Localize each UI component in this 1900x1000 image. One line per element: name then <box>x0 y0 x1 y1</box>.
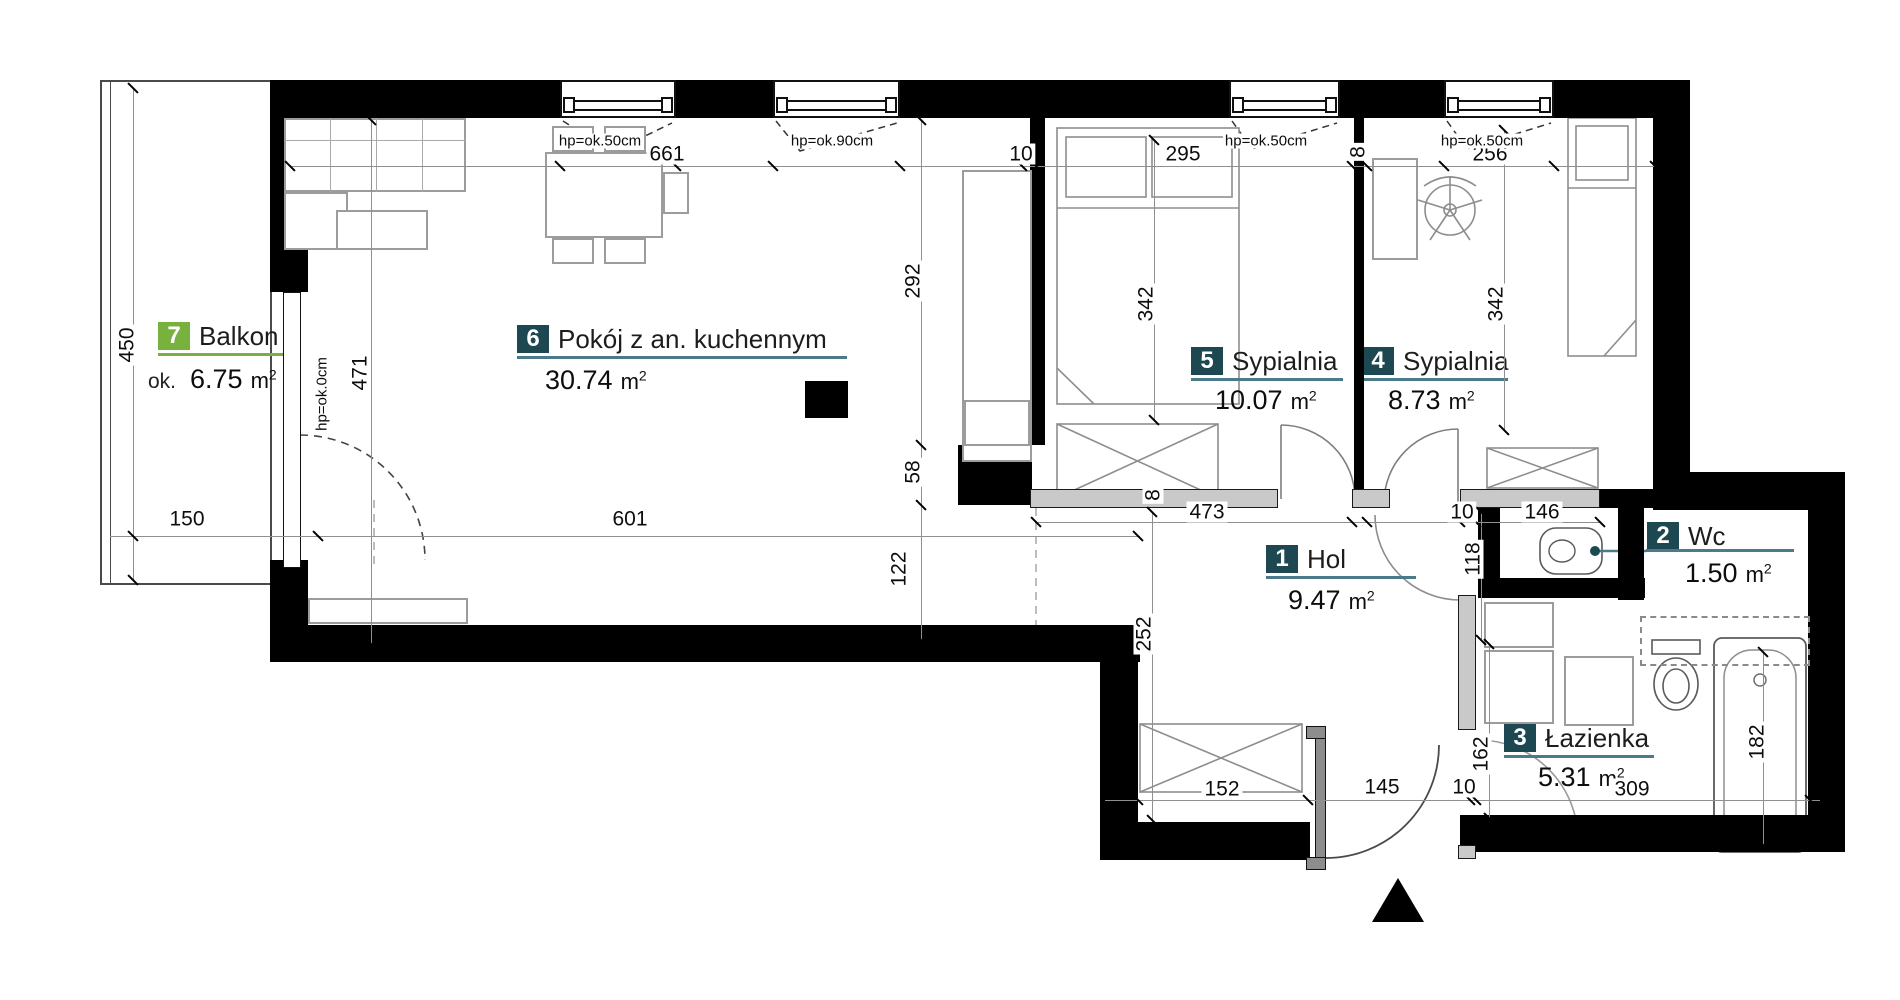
washing-machine <box>1564 656 1634 726</box>
label-underline <box>158 353 296 356</box>
window-4 <box>1444 80 1554 118</box>
window-height-label-w1: hp=ok.50cm <box>557 134 643 149</box>
chair <box>604 238 646 264</box>
dimension-d118: 118 <box>1463 539 1484 578</box>
dimension-line <box>290 166 1655 167</box>
room-area: ok.6.75m2 <box>148 364 277 395</box>
window-hinge <box>1232 97 1244 113</box>
wall <box>1600 489 1655 508</box>
dimension-d150: 150 <box>166 509 207 530</box>
wall <box>1354 118 1364 500</box>
label-underline <box>1266 576 1416 579</box>
dimension-d252: 252 <box>1134 613 1155 654</box>
dimension-line <box>1504 130 1505 430</box>
window-glazing <box>1449 100 1549 111</box>
room-label-lazienka: 3 Łazienka 5.31m2 <box>1504 724 1649 752</box>
room-area: 10.07m2 <box>1215 385 1317 416</box>
window-height-label-w3: hp=ok.50cm <box>1223 134 1309 149</box>
sideboard <box>308 598 468 624</box>
entry-door-leaf <box>1315 738 1326 858</box>
window-glazing <box>778 100 895 111</box>
label-underline <box>1191 378 1343 381</box>
room-name: Hol <box>1307 545 1346 573</box>
dimension-d162: 162 <box>1471 733 1492 774</box>
window-height-label-w4: hp=ok.50cm <box>1439 134 1525 149</box>
wall <box>900 80 1229 118</box>
wall <box>805 381 848 418</box>
bedroom4-door-arc <box>1384 429 1458 503</box>
wall <box>1100 822 1310 860</box>
window-hinge <box>1539 97 1551 113</box>
window-hinge <box>563 97 575 113</box>
room-number-badge: 1 <box>1266 545 1298 573</box>
window-hinge <box>661 97 673 113</box>
window-glazing <box>565 100 671 111</box>
dimension-d8b: 8 <box>1143 486 1164 504</box>
ceiling-soffit-dashed <box>1640 616 1810 666</box>
partition-wall <box>1458 595 1476 730</box>
label-underline <box>517 356 847 359</box>
wall <box>1653 80 1690 510</box>
window-hinge <box>776 97 788 113</box>
room-name: Łazienka <box>1545 724 1649 752</box>
dimension-d601: 601 <box>609 509 650 530</box>
label-underline <box>1362 378 1508 381</box>
dimension-d471: 471 <box>350 352 371 393</box>
room-name: Pokój z an. kuchennym <box>558 325 827 353</box>
room-name: Balkon <box>199 322 279 350</box>
label-underline <box>1646 549 1794 552</box>
balcony-sliding-door <box>283 292 301 568</box>
sofa-divider <box>376 118 377 192</box>
room-name: Sypialnia <box>1232 347 1338 375</box>
dimension-d10a: 10 <box>1006 144 1035 165</box>
room-number-badge: 5 <box>1191 347 1223 375</box>
room-area: 30.74m2 <box>545 365 647 396</box>
window-height-label-w2: hp=ok.90cm <box>789 134 875 149</box>
window-3 <box>1229 80 1340 118</box>
room-number-badge: 7 <box>158 322 190 350</box>
dimension-d146: 146 <box>1521 502 1562 523</box>
sofa <box>284 118 466 192</box>
room-area: 8.73m2 <box>1388 385 1475 416</box>
room-area: 9.47m2 <box>1288 585 1375 616</box>
wall <box>1340 80 1444 118</box>
sofa-divider <box>422 118 423 192</box>
wall <box>270 625 1140 662</box>
room-label-balkon: 7 Balkon ok.6.75m2 <box>158 322 279 350</box>
dimension-d342a: 342 <box>1136 283 1157 324</box>
room-label-sypialnia5: 5 Sypialnia 10.07m2 <box>1191 347 1338 375</box>
chair <box>663 172 689 214</box>
north-arrow <box>1372 878 1424 922</box>
dimension-d309: 309 <box>1611 779 1652 800</box>
bed-bedroom4 <box>1568 118 1636 356</box>
room-number-badge: 2 <box>1647 522 1679 550</box>
hol-door-arc <box>1375 515 1460 600</box>
dimension-d152: 152 <box>1201 779 1242 800</box>
floor-plan: 7 Balkon ok.6.75m2 6 Pokój z an. kuchenn… <box>0 0 1900 1000</box>
window-1 <box>560 80 676 118</box>
window-hinge <box>885 97 897 113</box>
entry-door-jamb <box>1306 857 1326 870</box>
dimension-d473: 473 <box>1186 502 1227 523</box>
dimension-line <box>1035 522 1600 523</box>
window-2 <box>773 80 900 118</box>
dimension-d450: 450 <box>117 324 138 365</box>
wardrobe-bedroom5 <box>1057 424 1218 498</box>
room-name: Wc <box>1688 522 1726 550</box>
wall <box>1808 472 1845 852</box>
dimension-d661: 661 <box>646 144 687 165</box>
window-hinge <box>1325 97 1337 113</box>
wall <box>1460 815 1845 852</box>
room-number-badge: 6 <box>517 325 549 353</box>
wall <box>676 80 773 118</box>
dimension-d295: 295 <box>1162 144 1203 165</box>
dimension-d292: 292 <box>903 260 924 301</box>
dining-table <box>545 152 663 238</box>
wall <box>1478 578 1645 598</box>
entry-door-arc <box>1326 745 1439 858</box>
wc-counter <box>1484 602 1554 648</box>
room-label-wc: 2 Wc 1.50m2 <box>1647 522 1726 550</box>
room-label-hol: 1 Hol 9.47m2 <box>1266 545 1346 573</box>
dimension-d10c: 10 <box>1449 777 1478 798</box>
desk <box>1372 158 1418 260</box>
fridge <box>964 400 1030 446</box>
coffee-table <box>336 210 428 250</box>
room-label-pokoj: 6 Pokój z an. kuchennym 30.74m2 <box>517 325 827 353</box>
dimension-d58: 58 <box>903 457 924 486</box>
room-area: 1.50m2 <box>1685 558 1772 589</box>
room-name: Sypialnia <box>1403 347 1509 375</box>
bathroom-washbasin <box>1484 650 1554 724</box>
sofa-divider <box>330 118 331 192</box>
dimension-d342b: 342 <box>1486 283 1507 324</box>
partition-wall <box>1352 489 1390 508</box>
window-height-label-door: hp=ok.0cm <box>315 355 330 433</box>
dimension-d10b: 10 <box>1447 502 1476 523</box>
partition-wall <box>1458 845 1476 859</box>
dimension-line <box>1489 644 1490 818</box>
room-label-sypialnia4: 4 Sypialnia 8.73m2 <box>1362 347 1509 375</box>
dimension-line <box>1152 512 1153 820</box>
dimension-line <box>110 536 1140 537</box>
label-underline <box>1504 755 1654 758</box>
wall <box>270 80 560 118</box>
dimension-line <box>1154 140 1155 420</box>
office-chair <box>1418 176 1482 240</box>
sofa-divider <box>284 140 466 141</box>
chair <box>552 238 594 264</box>
dimension-d145: 145 <box>1361 777 1402 798</box>
room-number-badge: 3 <box>1504 724 1536 752</box>
balcony-door-arc <box>300 435 425 560</box>
window-glazing <box>1234 100 1335 111</box>
room-number-badge: 4 <box>1362 347 1394 375</box>
dimension-d8: 8 <box>1348 143 1369 161</box>
dimension-d182: 182 <box>1747 721 1768 762</box>
wardrobe-bedroom4 <box>1487 448 1598 488</box>
bedroom5-door-arc <box>1281 425 1355 499</box>
window-hinge <box>1447 97 1459 113</box>
dimension-line <box>921 120 922 640</box>
dimension-d122: 122 <box>889 548 910 589</box>
